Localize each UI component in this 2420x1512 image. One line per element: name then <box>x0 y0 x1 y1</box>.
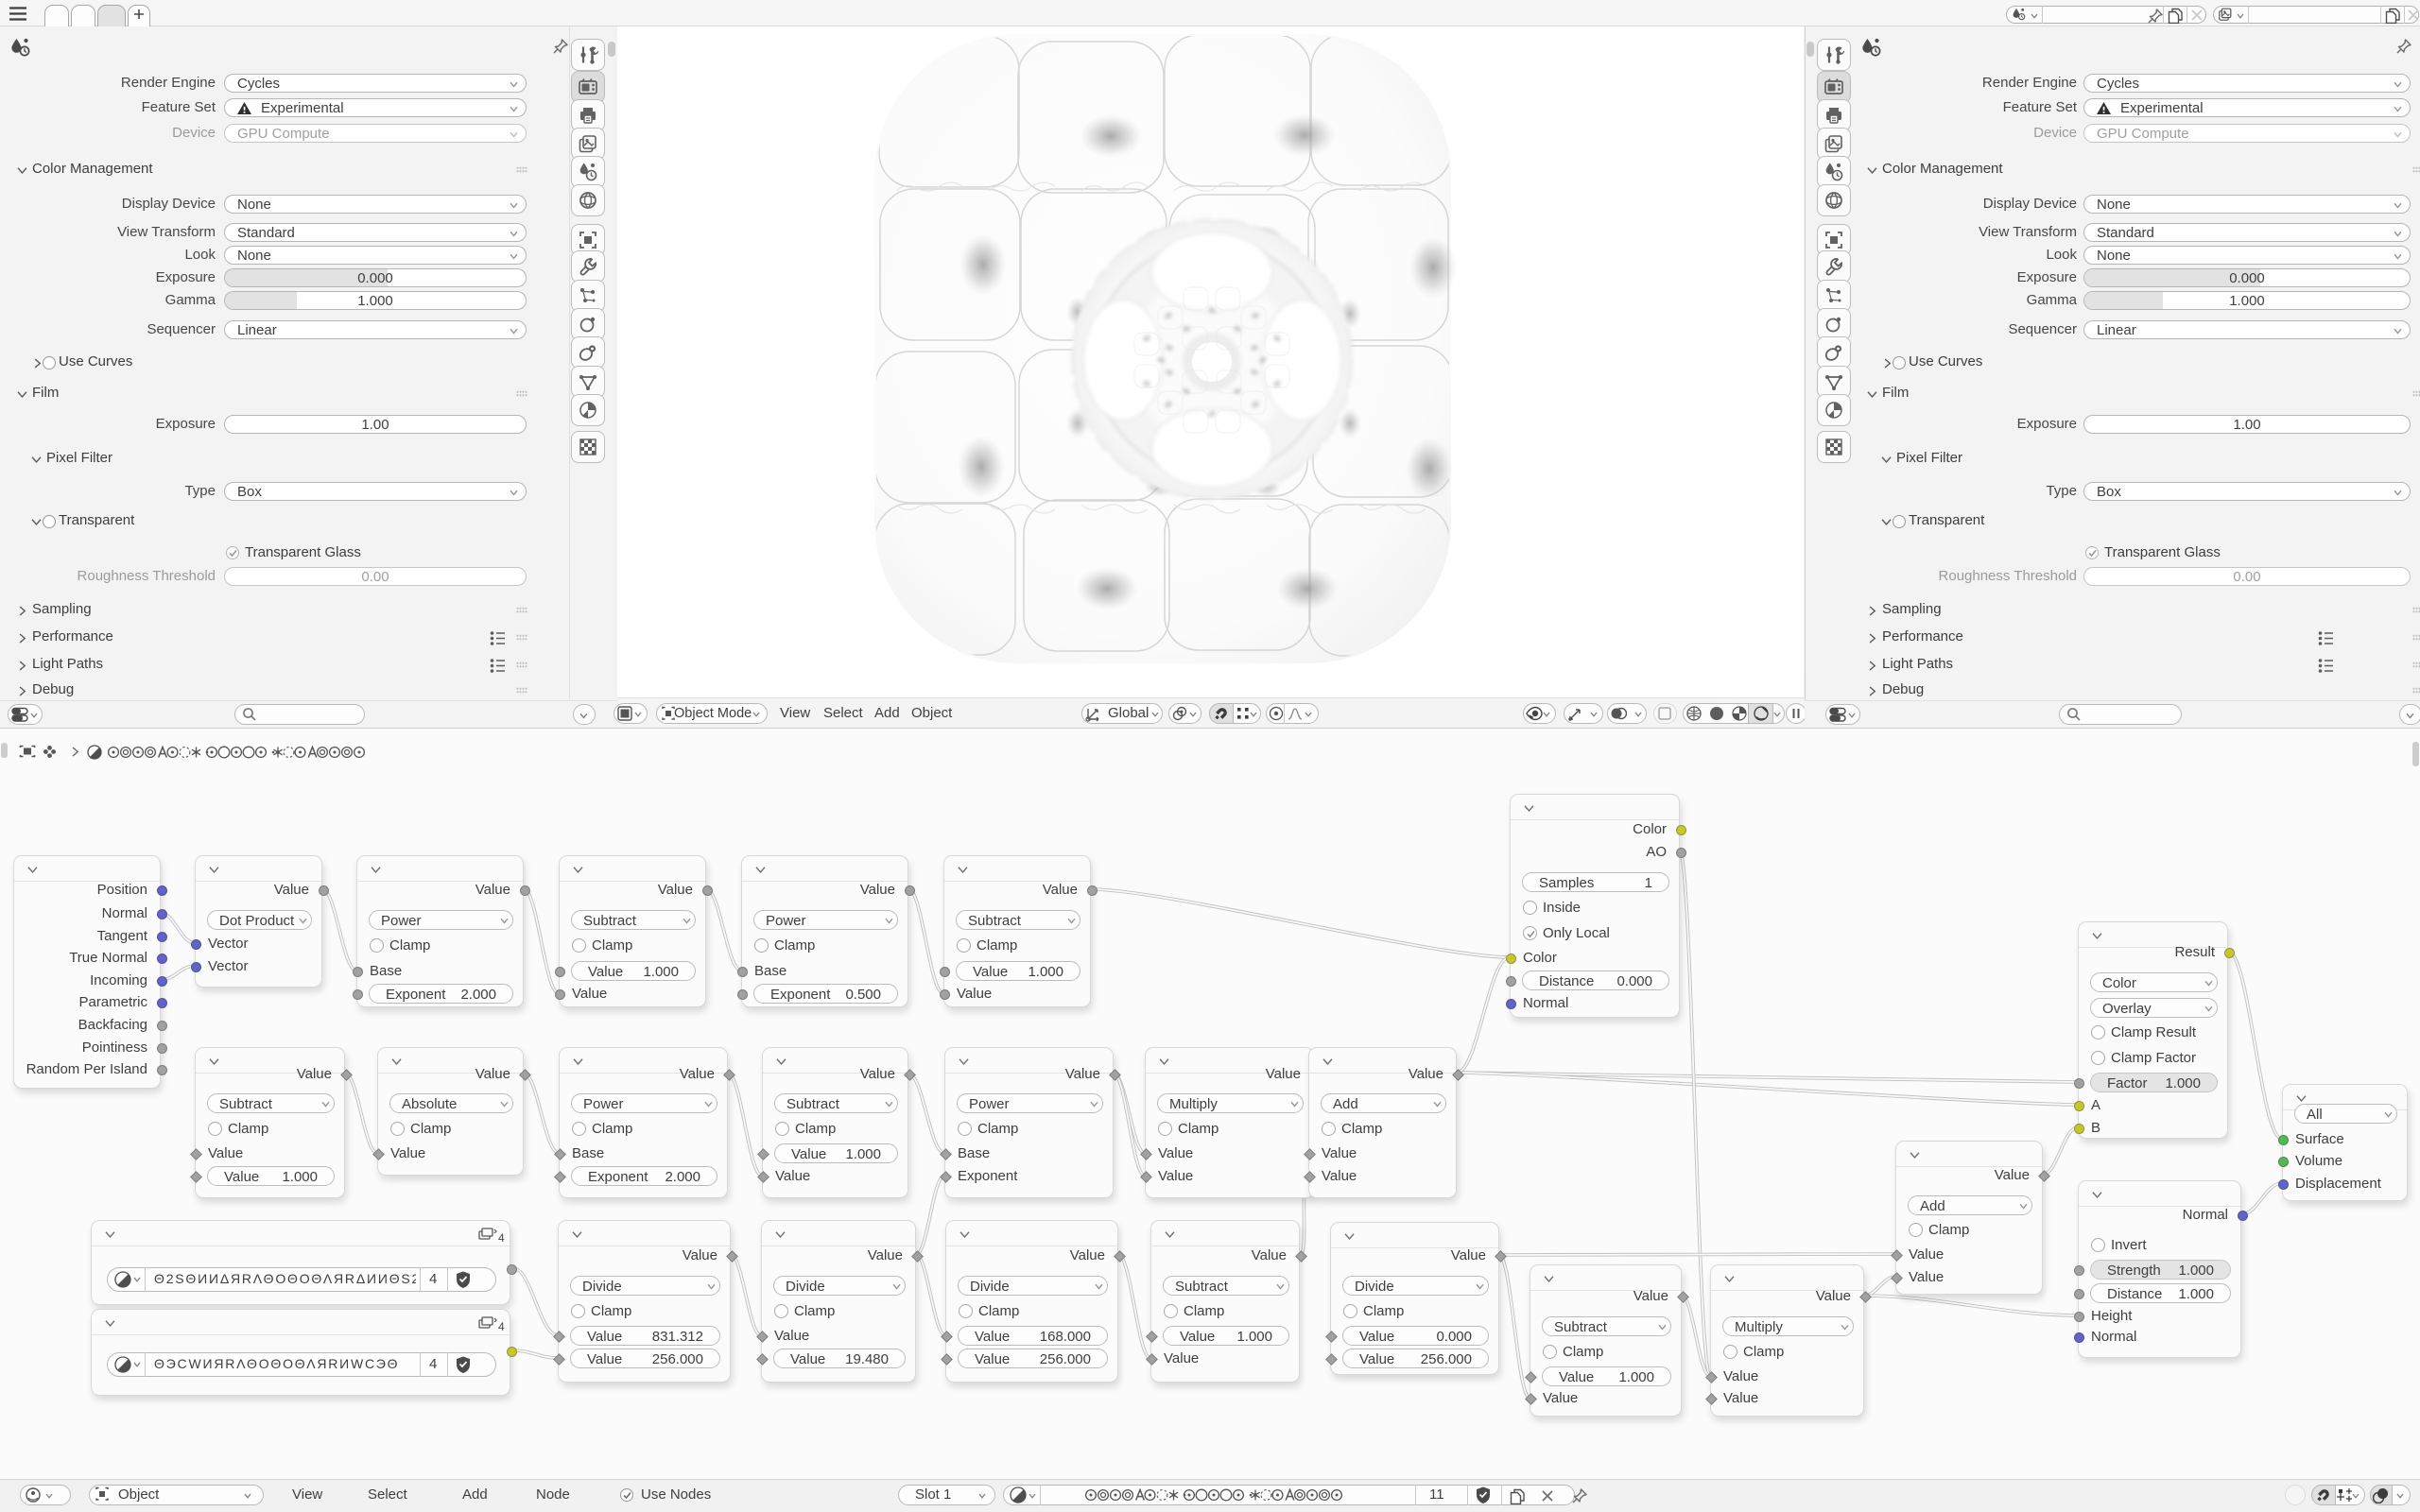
svg-text:4: 4 <box>498 1231 505 1244</box>
svg-text:4: 4 <box>498 1320 505 1332</box>
